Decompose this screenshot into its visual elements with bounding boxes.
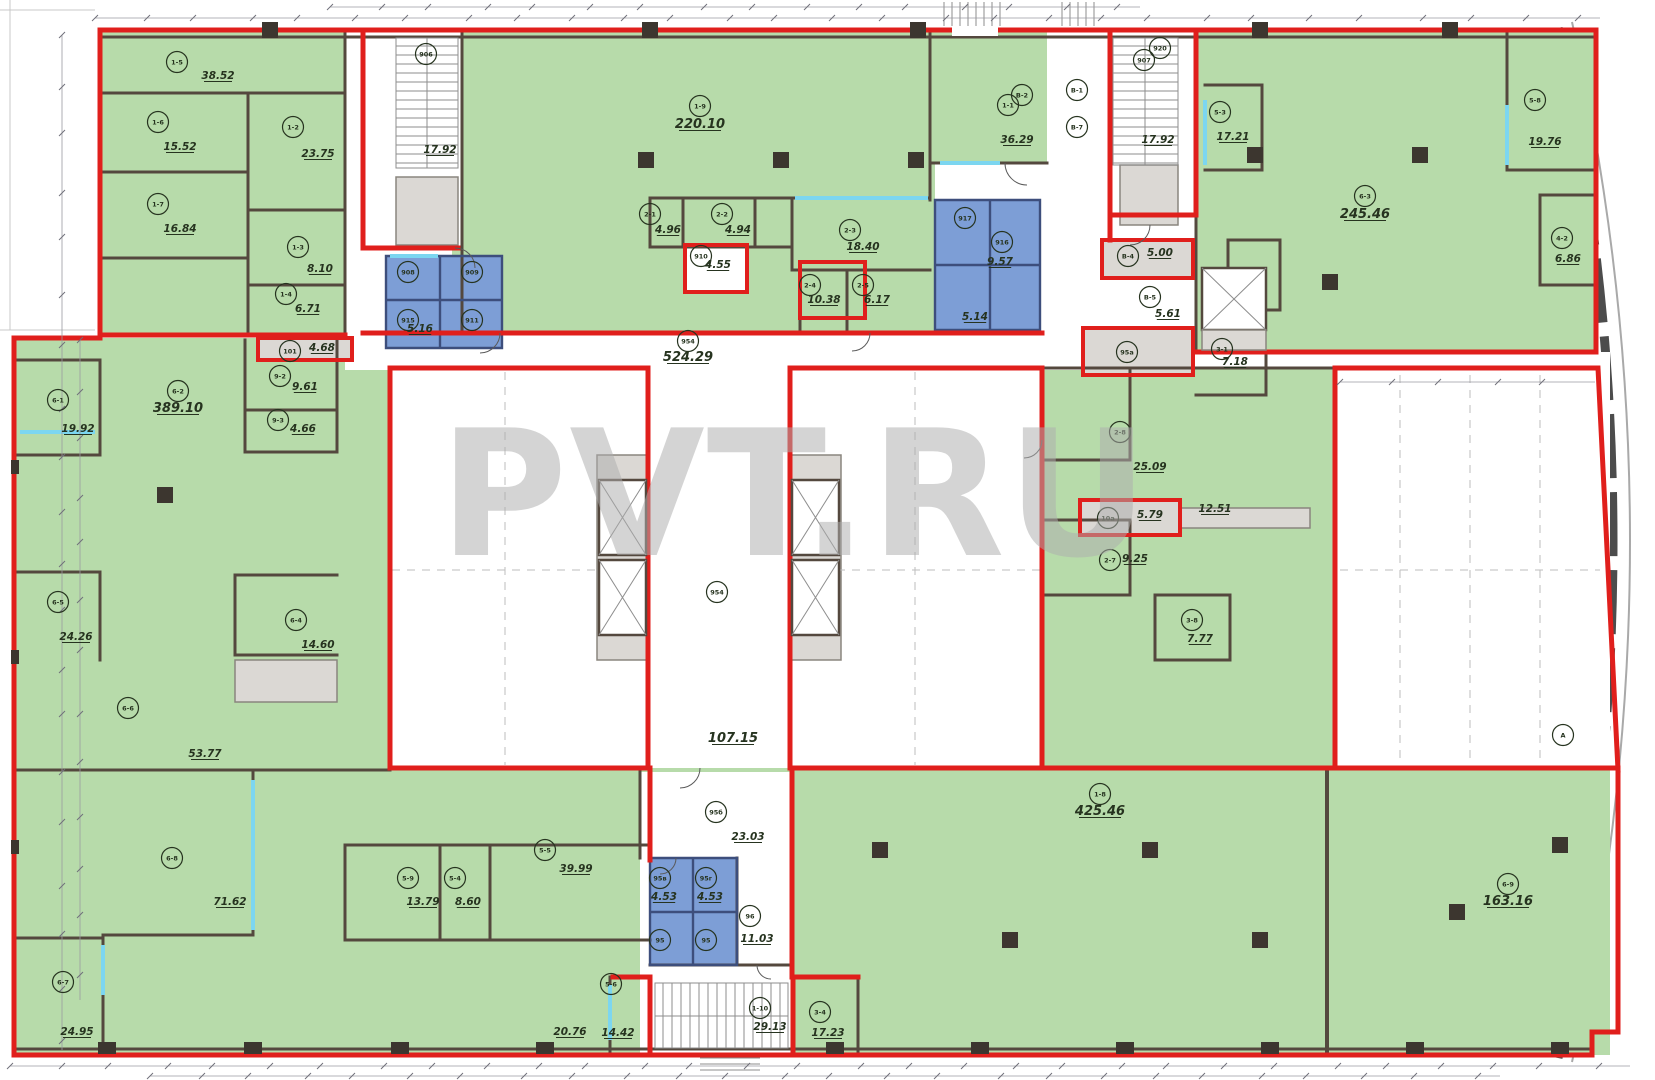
room-tag: 5-9 (402, 874, 414, 882)
room-area-label: 29.13 (753, 1021, 786, 1033)
room-tag: 916 (995, 238, 1009, 246)
room-tag: 1-5 (171, 58, 183, 66)
room-area-label: 16.84 (163, 223, 196, 235)
room-area-label: 5.61 (1155, 308, 1181, 320)
room-area-label: 19.92 (61, 423, 94, 435)
room-tag: 6-9 (1502, 880, 1514, 888)
room-area-label: 36.29 (1000, 134, 1033, 146)
room-tag: 5-6 (605, 980, 617, 988)
marker-tag: А (1560, 731, 1565, 739)
room-tag: 4-2 (1556, 234, 1568, 242)
room-tag: 2-2 (716, 210, 728, 218)
room-tag: 6-4 (290, 616, 302, 624)
room-tag: 2-3 (844, 226, 856, 234)
room-tag: 95г (700, 874, 713, 882)
room-area-label: 14.60 (301, 639, 334, 651)
tech-room-500 (1102, 240, 1193, 278)
room-area-label: 163.16 (1483, 894, 1533, 909)
room-area-label: 19.76 (1528, 136, 1561, 148)
vestibule-1 (396, 177, 458, 245)
room-tag: 907 (1137, 56, 1151, 64)
room-tag: 1-1 (1002, 101, 1014, 109)
room-tag: 6-3 (1359, 192, 1371, 200)
marker-tag: 911 (465, 316, 479, 324)
room-tag: 1-8 (1094, 790, 1106, 798)
room-tag: 6-8 (166, 854, 178, 862)
room-area-label: 71.62 (213, 896, 246, 908)
room-area-label: 9.61 (292, 381, 318, 393)
room-area-label: 389.10 (153, 401, 203, 416)
room-tag: 1-2 (287, 123, 299, 131)
room-area-label: 220.10 (675, 117, 725, 132)
marker-tag: В-7 (1071, 123, 1083, 131)
room-area-label: 6.86 (1555, 253, 1581, 265)
room-area-label: 14.42 (601, 1027, 634, 1039)
floor-plan-page: 38.521-515.521-616.841-723.751-28.101-36… (0, 0, 1655, 1080)
room-tag: 1-9 (694, 102, 706, 110)
room-area-label: 13.79 (406, 896, 439, 908)
room-tag: 9-2 (274, 372, 286, 380)
room-tag: 954 (681, 337, 695, 345)
marker-tag: 920 (1153, 44, 1167, 52)
room-tag: 6-6 (122, 704, 134, 712)
room-area-label: 9.57 (987, 256, 1014, 268)
room-area-label: 53.77 (188, 748, 222, 760)
room-area-label: 20.76 (553, 1026, 586, 1038)
room-area-label: 17.23 (811, 1027, 844, 1039)
marker-tag: В-1 (1071, 86, 1084, 94)
room-tag: 6-7 (57, 978, 69, 986)
room-area-label: 4.55 (704, 259, 731, 271)
room-area-label: 4.96 (654, 224, 681, 236)
marker-tag: В-2 (1016, 91, 1028, 99)
room-area-label: 12.51 (1198, 503, 1231, 515)
floor-plan-drawing: 38.521-515.521-616.841-723.751-28.101-36… (0, 0, 1655, 1080)
room-tag: 1-10 (752, 1004, 769, 1012)
room-area-label: 17.92 (1141, 134, 1174, 146)
marker-tag: 915 (401, 316, 415, 324)
room-area-label: 39.99 (559, 863, 592, 875)
room-tag: 917 (958, 214, 972, 222)
marker-tag: 95 (701, 936, 711, 944)
room-tag: В-4 (1122, 252, 1135, 260)
room-tag: 5-5 (539, 846, 551, 854)
room-area-label: 107.15 (708, 731, 758, 746)
room-area-label: 5.00 (1147, 247, 1173, 259)
room-tag: 5-8 (1529, 96, 1541, 104)
room-area-label: 38.52 (201, 70, 234, 82)
room-tag: 2-4 (804, 281, 816, 289)
room-tag: 96 (745, 912, 755, 920)
room-area-label: 5.14 (962, 311, 988, 323)
room-tag: 95в (653, 874, 666, 882)
room-area-label: 6.17 (864, 294, 891, 306)
room-tag: 5-4 (449, 874, 461, 882)
room-area-label: 24.26 (59, 631, 92, 643)
watermark-text: PVT.RU (439, 394, 1151, 597)
room-area-label: 4.53 (696, 891, 723, 903)
room-tag: 1-6 (152, 118, 164, 126)
room-area-label: 11.03 (740, 933, 773, 945)
room-area-label: 24.95 (60, 1026, 93, 1038)
room-tag: В-5 (1144, 293, 1157, 301)
room-tag: 3-8 (1186, 616, 1198, 624)
room-area-label: 4.66 (289, 423, 316, 435)
room-tag: 6-2 (172, 387, 184, 395)
room-tag: 9-3 (272, 416, 284, 424)
room-tag: 906 (419, 50, 433, 58)
room-area-label: 15.52 (163, 141, 196, 153)
room-area-label: 4.68 (308, 342, 335, 354)
room-tag: 6-5 (52, 598, 64, 606)
room-area-label: 23.03 (731, 831, 764, 843)
room-area-label: 18.40 (846, 241, 879, 253)
room-area-label: 425.46 (1074, 804, 1125, 819)
terrace-zone (1335, 352, 1610, 768)
room-tag: 3-1 (1216, 345, 1228, 353)
room-tag: 1-3 (292, 243, 304, 251)
room-area-label: 17.21 (1216, 131, 1249, 143)
room-tag: 908 (401, 268, 415, 276)
room-tag: 910 (694, 252, 708, 260)
room-tag: 2-1 (644, 210, 656, 218)
room-area-label: 245.46 (1340, 207, 1390, 222)
room-area-label: 5.16 (407, 323, 433, 335)
room-area-label: 7.77 (1187, 633, 1214, 645)
room-area-label: 4.53 (650, 891, 677, 903)
room-area-label: 8.60 (455, 896, 481, 908)
marker-tag: 909 (465, 268, 479, 276)
room-area-label: 8.10 (307, 263, 333, 275)
room-tag: 5-3 (1214, 108, 1226, 116)
marker-tag: 95а (1120, 348, 1133, 356)
room-area-label: 23.75 (301, 148, 334, 160)
tech-room-left (235, 660, 337, 702)
room-tag: 1-7 (152, 200, 164, 208)
room-area-label: 4.94 (724, 224, 751, 236)
room-tag: 1-4 (280, 290, 292, 298)
room-area-label: 17.92 (423, 144, 456, 156)
marker-tag: 95 (655, 936, 665, 944)
room-tag: 101 (283, 347, 297, 355)
room-area-label: 7.18 (1222, 356, 1248, 368)
room-area-label: 6.71 (295, 303, 321, 315)
room-tag: 6-1 (52, 396, 64, 404)
room-area-label: 524.29 (663, 350, 713, 365)
room-tag: 2-5 (857, 281, 869, 289)
room-tag: 95б (709, 808, 723, 816)
room-tag: 3-4 (814, 1008, 826, 1016)
